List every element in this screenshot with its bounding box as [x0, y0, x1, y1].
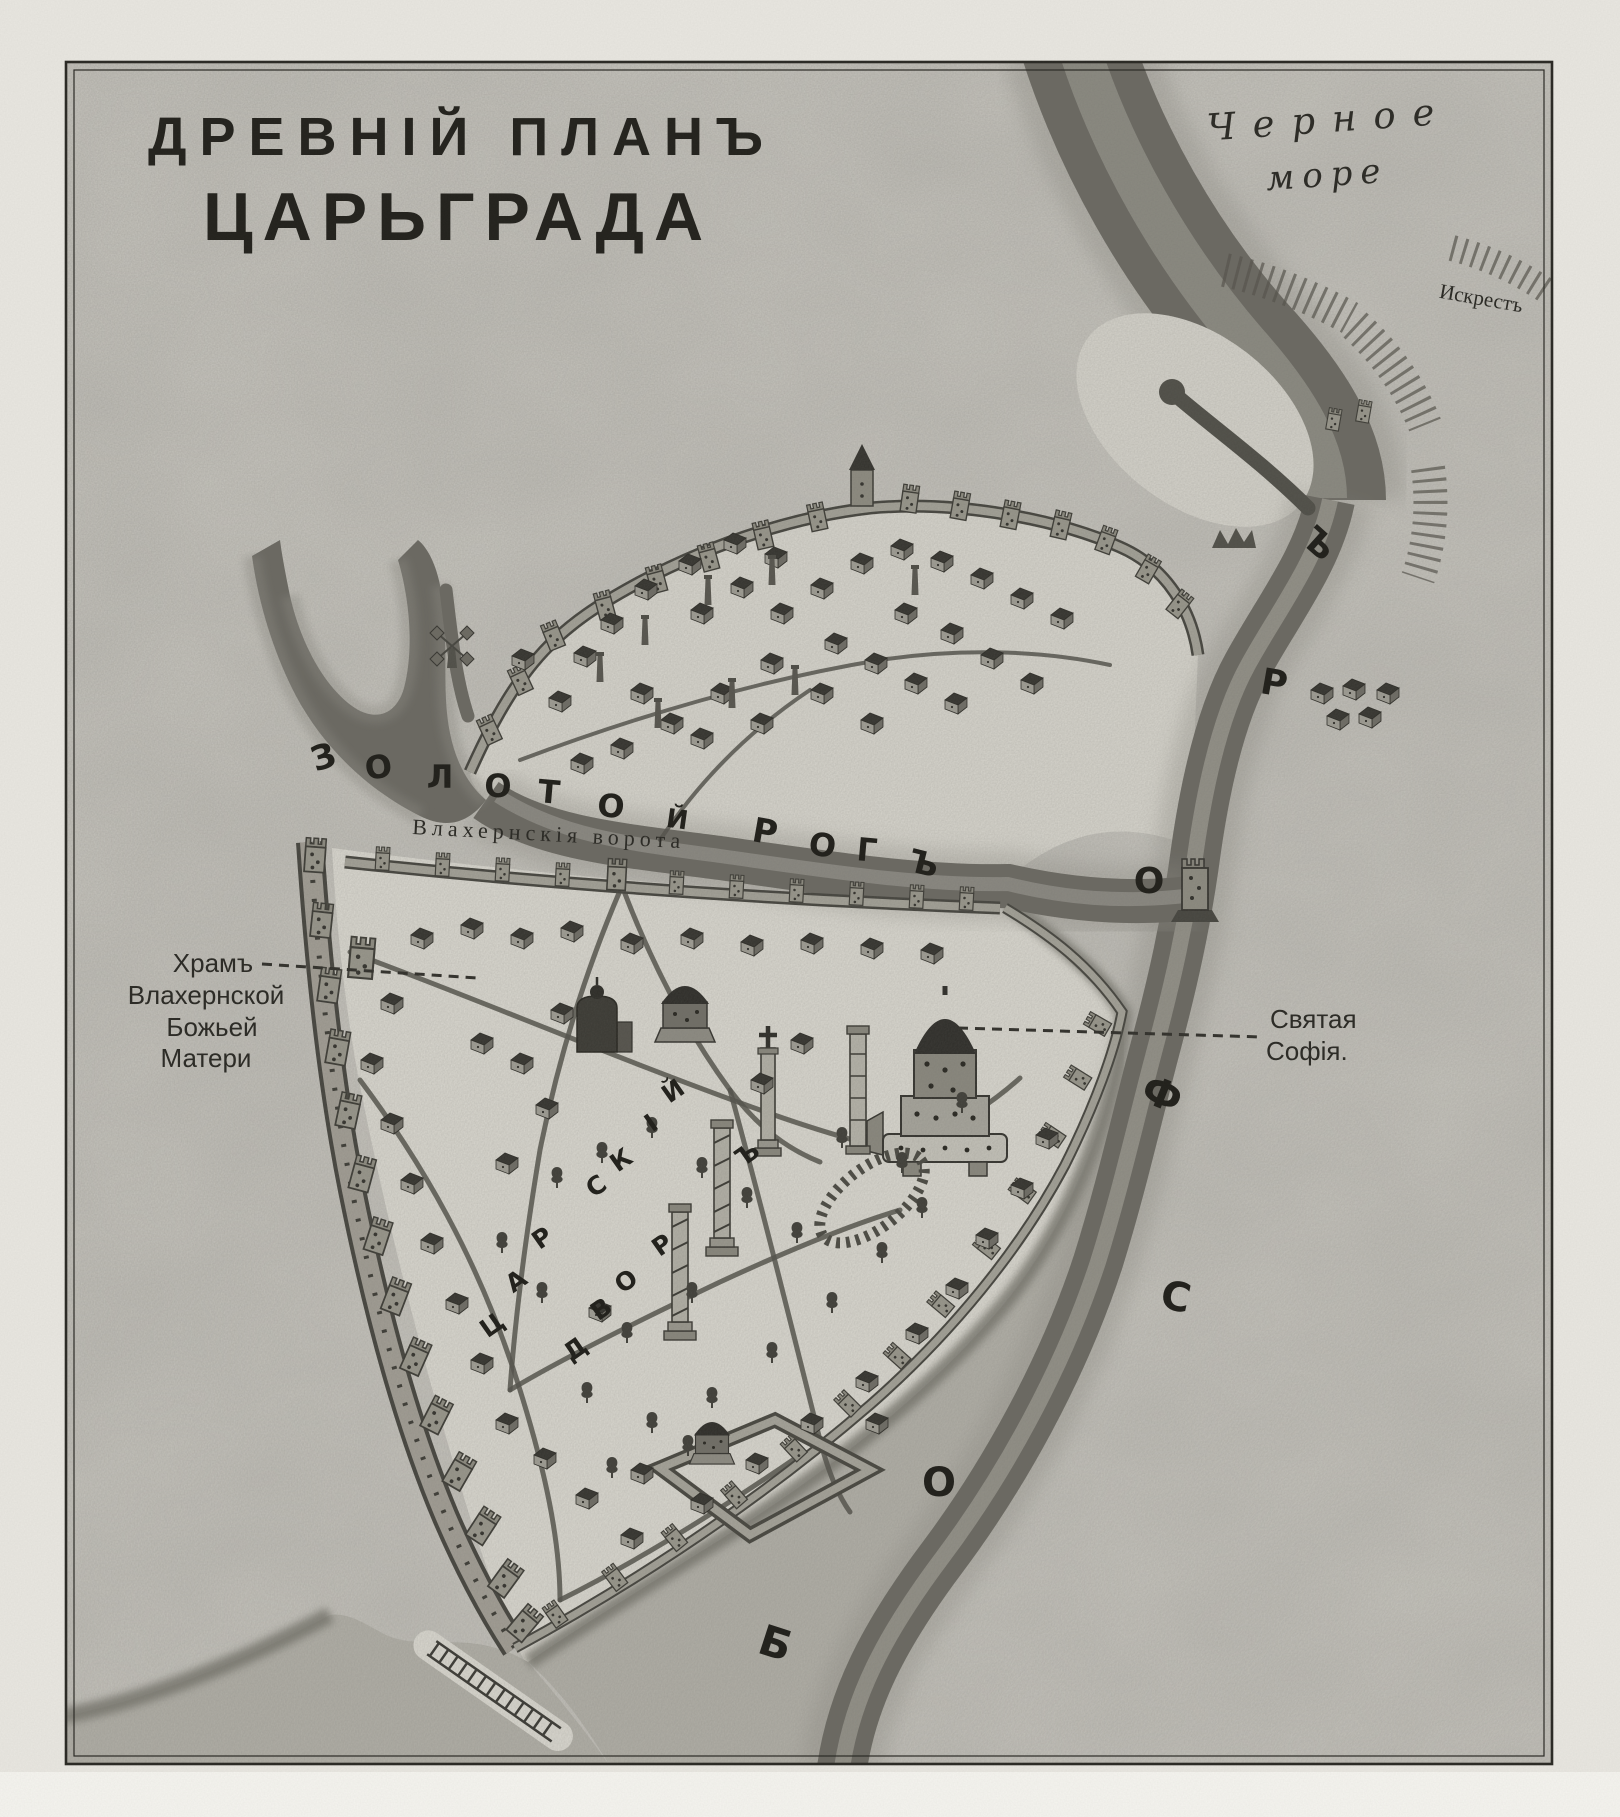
svg-text:Храмъ: Храмъ [173, 948, 253, 978]
paper-grain-texture [66, 62, 1552, 1764]
water-letter: О [1134, 861, 1165, 902]
map-canvas: ДРЕВНІЙ ПЛАНЪ ЦАРЬГРАДА Черное море Искр… [0, 0, 1620, 1817]
svg-text:Влахернской: Влахернской [128, 980, 285, 1010]
water-letter: О [596, 786, 626, 826]
map-title-line1: ДРЕВНІЙ ПЛАНЪ [148, 106, 776, 167]
map-artwork: ДРЕВНІЙ ПЛАНЪ ЦАРЬГРАДА Черное море Искр… [64, 40, 1552, 1768]
water-letter: Й [664, 802, 690, 837]
water-letter: О [806, 824, 838, 865]
water-letter: Г [855, 830, 879, 870]
water-letter: О [922, 1460, 956, 1506]
svg-text:Божьей: Божьей [166, 1012, 257, 1042]
svg-text:Матери: Матери [161, 1043, 252, 1073]
map-title-line2: ЦАРЬГРАДА [203, 179, 713, 255]
water-letter: Л [427, 758, 454, 796]
scanned-map-page: ДРЕВНІЙ ПЛАНЪ ЦАРЬГРАДА Черное море Искр… [0, 0, 1620, 1817]
water-letter: Т [536, 772, 561, 812]
black-sea-label-line2: море [1265, 151, 1390, 199]
page-bottom-strip [0, 1772, 1620, 1817]
svg-text:Софія.: Софія. [1266, 1036, 1348, 1066]
water-letter: О [362, 746, 394, 787]
svg-text:Святая: Святая [1270, 1004, 1357, 1034]
water-letter: О [484, 767, 511, 805]
